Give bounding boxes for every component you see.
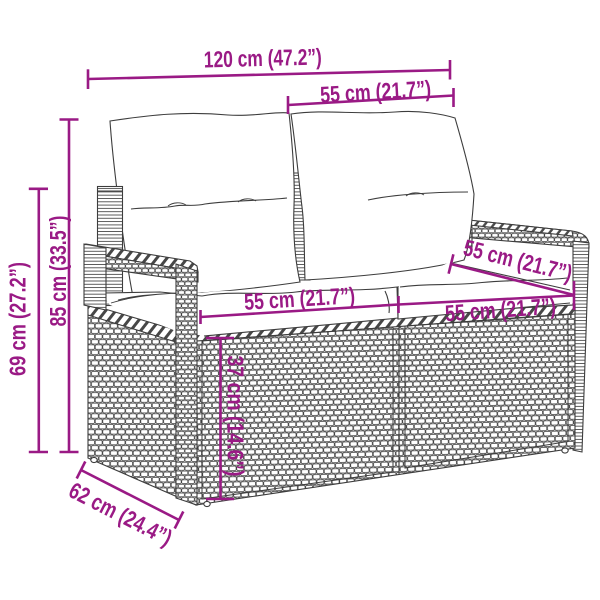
svg-text:37 cm (14.6”): 37 cm (14.6”) xyxy=(223,356,249,477)
svg-text:120 cm (47.2”): 120 cm (47.2”) xyxy=(203,43,322,72)
svg-text:69 cm (27.2”): 69 cm (27.2”) xyxy=(5,262,31,376)
svg-text:85 cm (33.5”): 85 cm (33.5”) xyxy=(45,216,71,327)
